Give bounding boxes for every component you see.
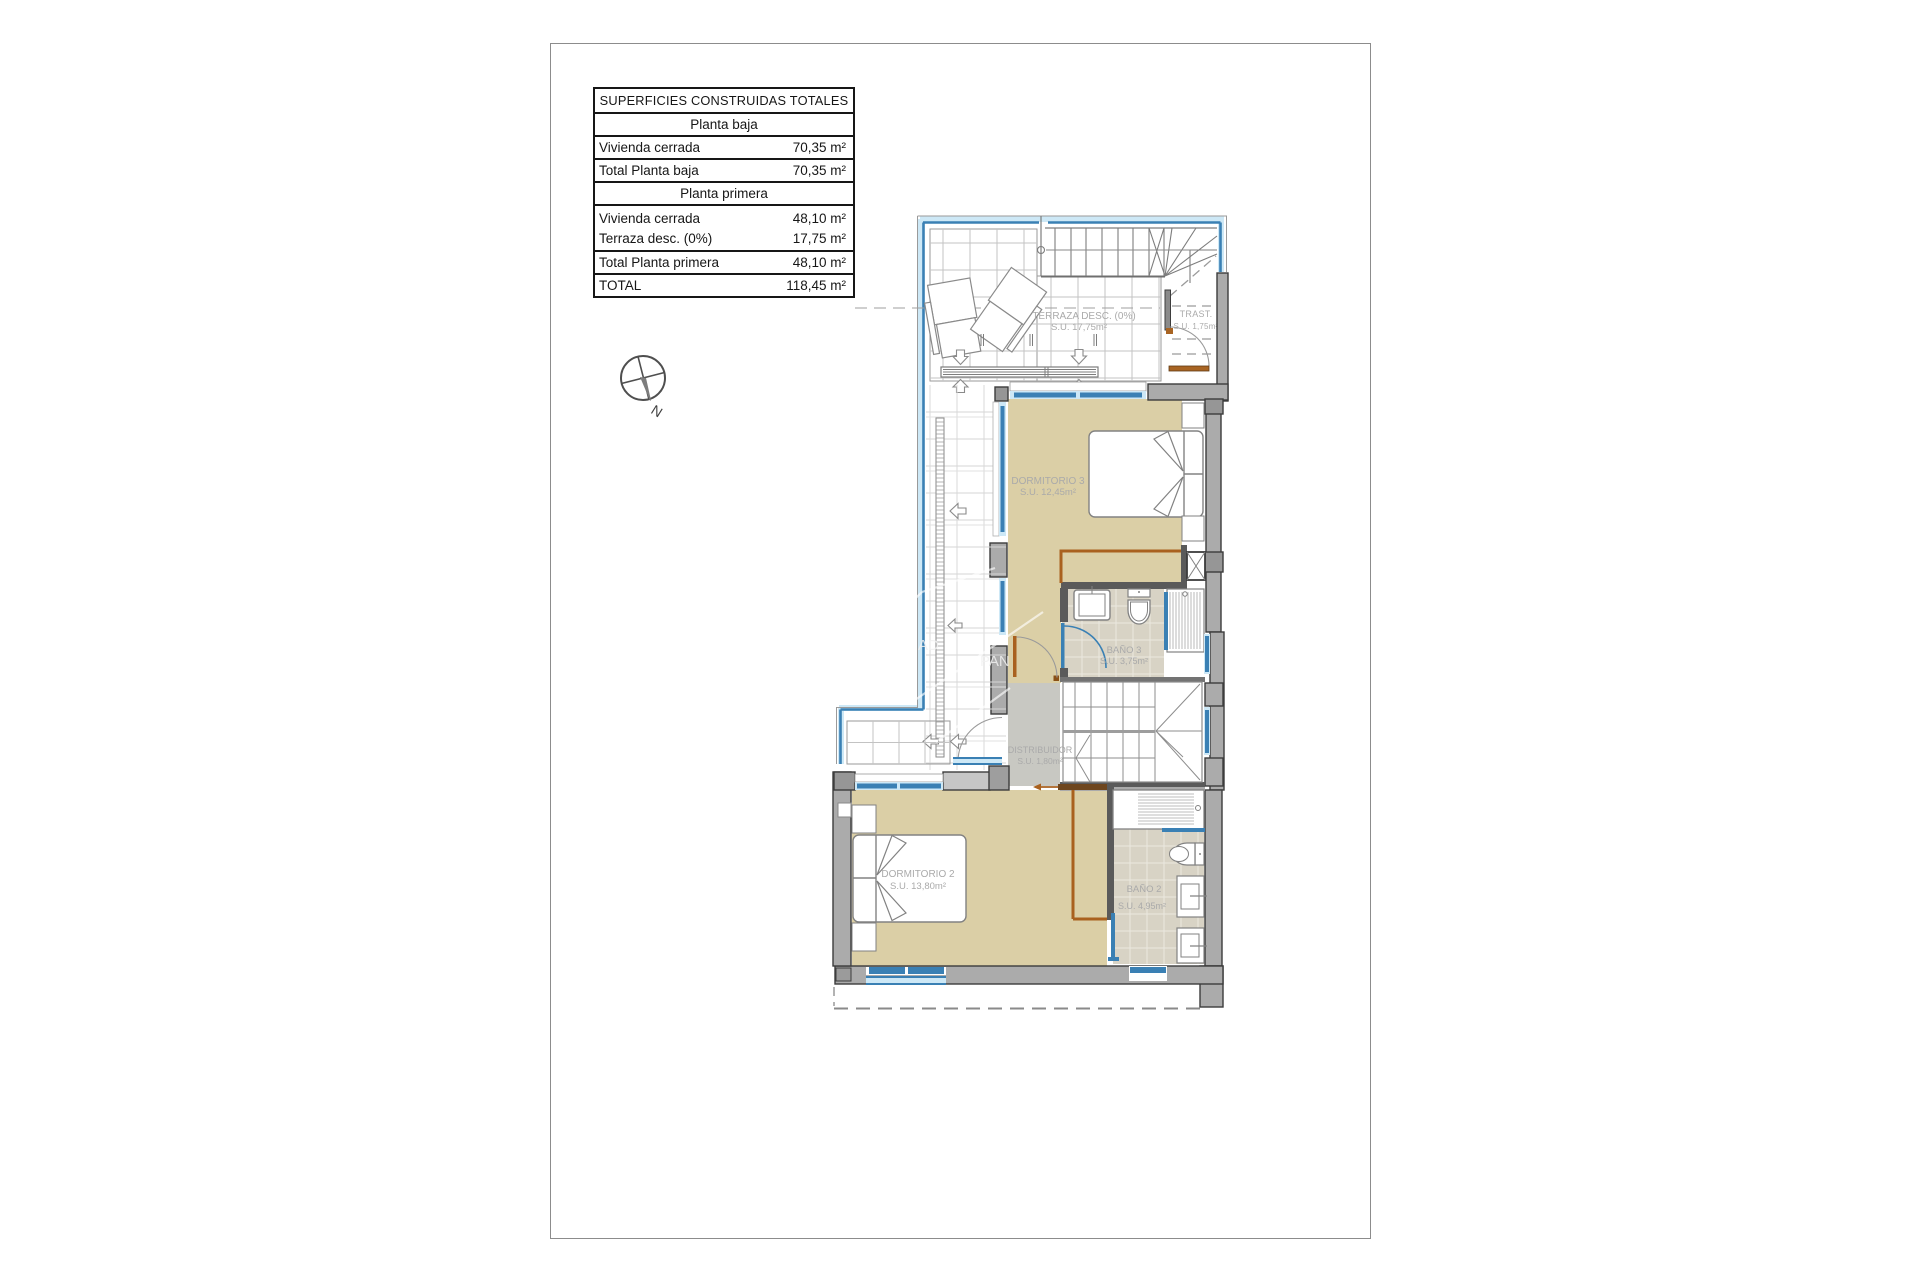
svg-text:TRAST.: TRAST. — [1180, 309, 1213, 319]
svg-text:DISTRIBUIDOR: DISTRIBUIDOR — [1008, 745, 1073, 755]
svg-text:S.U. 13,80m²: S.U. 13,80m² — [890, 881, 946, 892]
svg-text:S.U. 12,45m²: S.U. 12,45m² — [1020, 487, 1076, 498]
svg-text:S.U. 3,75m²: S.U. 3,75m² — [1100, 656, 1148, 666]
svg-text:S.U. 1,80m²: S.U. 1,80m² — [1017, 756, 1063, 766]
svg-text:N: N — [648, 402, 665, 421]
svg-text:DORMITORIO 2: DORMITORIO 2 — [881, 869, 955, 880]
svg-text:PAN: PAN — [980, 653, 1010, 670]
svg-text:S.U. 4,95m²: S.U. 4,95m² — [1118, 901, 1166, 911]
svg-text:DORMITORIO 3: DORMITORIO 3 — [1011, 476, 1085, 487]
svg-text:BAÑO 3: BAÑO 3 — [1107, 645, 1142, 656]
svg-text:S.U. 17,75m²: S.U. 17,75m² — [1051, 322, 1107, 333]
svg-text:BAÑO 2: BAÑO 2 — [1127, 884, 1162, 895]
svg-text:AD: AD — [918, 637, 939, 654]
svg-text:S.U. 1,75m²: S.U. 1,75m² — [1174, 322, 1219, 331]
svg-text:TERRAZA DESC. (0%): TERRAZA DESC. (0%) — [1032, 311, 1135, 322]
